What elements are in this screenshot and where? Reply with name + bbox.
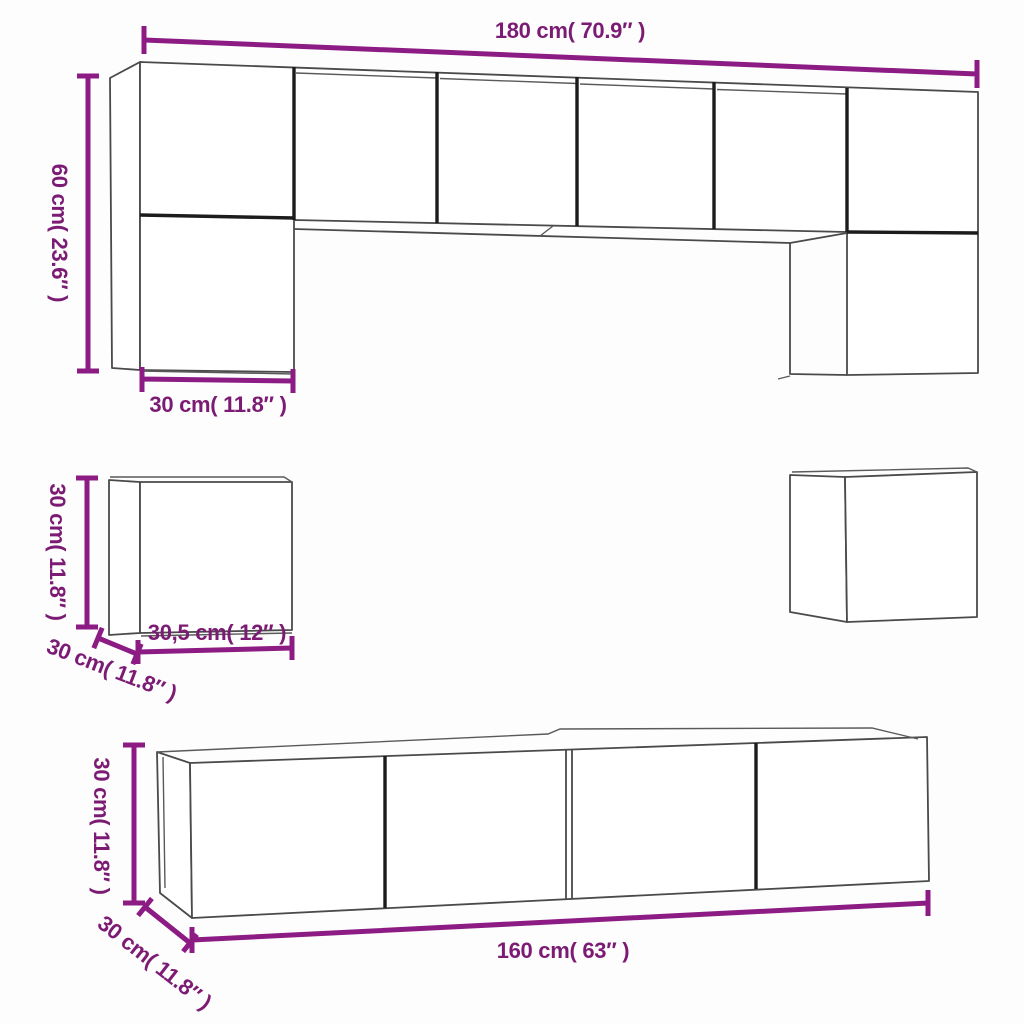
dim-label-top-unit-depth: 30 cm( 11.8″ ) [149, 392, 286, 417]
bridge-underside-seam [540, 226, 553, 236]
dim-line [123, 745, 145, 903]
dim-cube-width: 30,5 cm( 12″ ) [138, 620, 292, 664]
cube-side-face [109, 480, 140, 635]
dim-cube-height: 30 cm( 11.8″ ) [45, 478, 98, 627]
dim-label-cube-width: 30,5 cm( 12″ ) [148, 620, 286, 645]
dim-line [77, 76, 99, 371]
dim-label-bench-width: 160 cm( 63″ ) [497, 938, 630, 963]
bridge-underside-edge [294, 229, 790, 243]
wall-cube-right-drawing [790, 468, 977, 622]
dim-line [76, 478, 98, 627]
cabinet-side-face [110, 62, 140, 370]
dim-bench-height: 30 cm( 11.8″ ) [89, 745, 145, 903]
top-wall-unit-drawing [110, 62, 978, 379]
cabinet-bottom-sliver [778, 376, 790, 379]
dim-label-top-unit-width: 180 cm( 70.9″ ) [495, 18, 645, 43]
cube-front-face [140, 482, 292, 633]
dim-label-bench-height: 30 cm( 11.8″ ) [89, 757, 114, 894]
cabinet-side-face-right [790, 233, 847, 375]
dim-label-cube-height: 30 cm( 11.8″ ) [45, 483, 70, 620]
tv-bench-drawing [157, 728, 929, 918]
cube-top-back-edge [792, 468, 977, 472]
dim-label-top-unit-height: 60 cm( 23.6″ ) [47, 164, 72, 302]
dim-top-unit-depth: 30 cm( 11.8″ ) [142, 367, 293, 417]
cube-front-face [845, 472, 977, 622]
wall-cube-left-drawing [109, 477, 292, 636]
bench-side-face [157, 752, 192, 918]
product-dimension-image: 180 cm( 70.9″ ) 60 cm( 23.6″ ) 30 cm( 11… [0, 0, 1024, 1024]
dim-label-bench-depth: 30 cm( 11.8″ ) [93, 910, 217, 1014]
dim-top-unit-height: 60 cm( 23.6″ ) [47, 76, 99, 371]
dimension-diagram-canvas: 180 cm( 70.9″ ) 60 cm( 23.6″ ) 30 cm( 11… [0, 0, 1024, 1024]
cube-side-face [790, 475, 847, 622]
bench-front-face [190, 737, 929, 918]
